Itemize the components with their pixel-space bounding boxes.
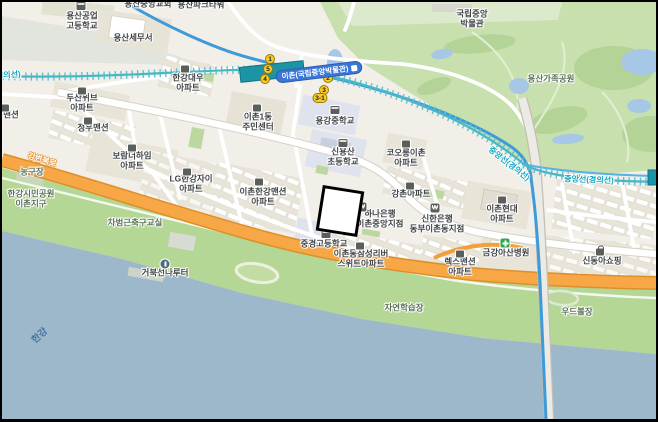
map-window: 용산공업 고등학교용산세무서용산파크타워용산중앙교회한강대우 아파트두산위브 아…	[0, 0, 658, 422]
selection-rectangle[interactable]	[316, 185, 365, 237]
exit-3-1[interactable]: 3-1	[313, 93, 328, 103]
map-canvas[interactable]: 용산공업 고등학교용산세무서용산파크타워용산중앙교회한강대우 아파트두산위브 아…	[2, 2, 656, 419]
exit-1[interactable]: 1	[265, 54, 275, 64]
exit-5[interactable]: 5	[263, 64, 273, 74]
exit-4[interactable]: 4	[260, 74, 270, 84]
